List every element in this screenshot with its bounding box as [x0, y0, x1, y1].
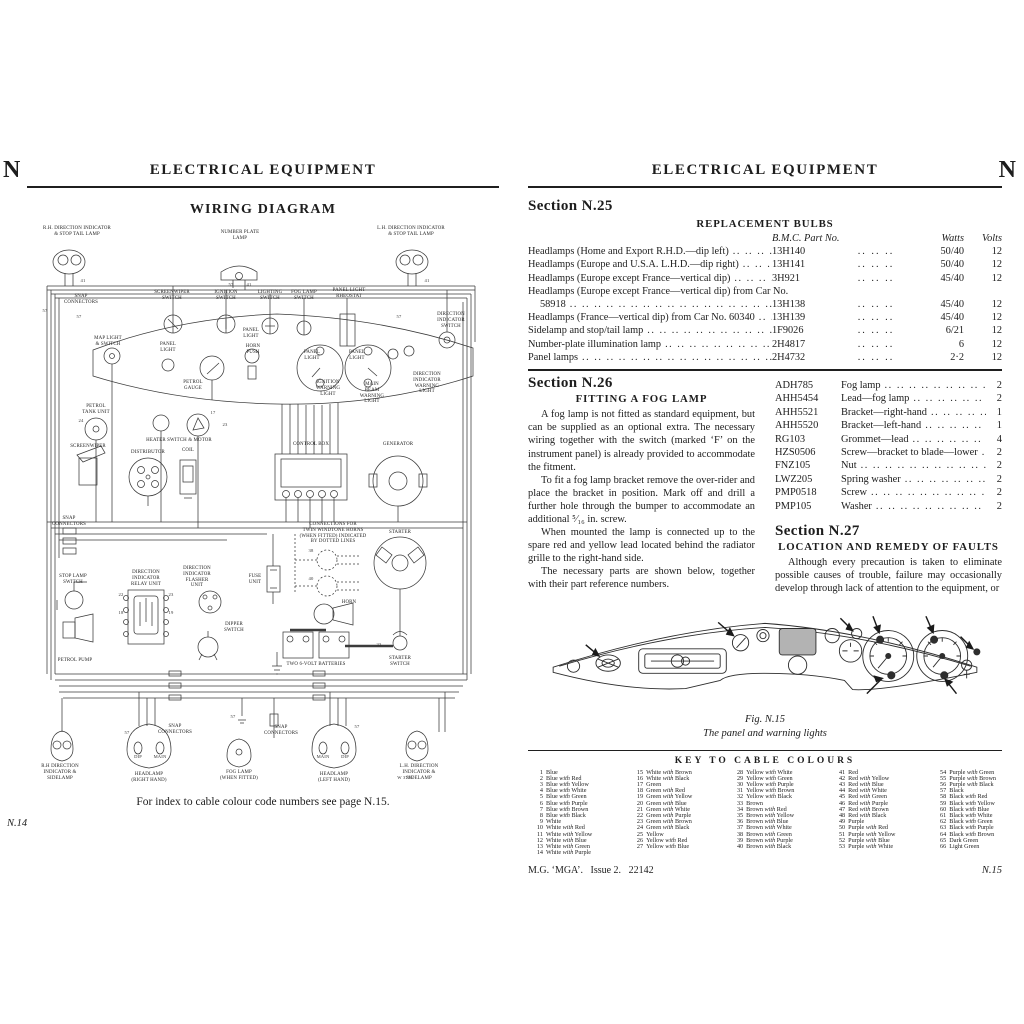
part-row: ADH785Fog lamp.. .. .. .. .. .. .. .. ..… [775, 379, 1002, 392]
component-label: HORN [342, 600, 356, 606]
paragraph: To fit a fog lamp bracket remove the ove… [528, 474, 755, 526]
page-n15: N ELECTRICAL EQUIPMENT Section N.25 REPL… [528, 160, 1002, 876]
component-label: SNAP CONNECTORS [158, 724, 192, 736]
column-header-part-no: B.M.C. Part No. [772, 232, 918, 245]
wiring-diagram-drawing [27, 222, 497, 788]
component-label: CONNECTIONS FOR TWIN WINDTONE HORNS (WHE… [290, 522, 376, 545]
column-header-watts: Watts [918, 232, 964, 245]
wire-code-label: 41 [81, 278, 86, 283]
component-label: PANEL LIGHT [349, 350, 365, 362]
component-label: MAP LIGHT & SWITCH [94, 336, 122, 348]
component-label: PANEL LIGHT RHEOSTAT [333, 288, 366, 300]
component-label: CONTROL BOX [293, 442, 329, 448]
key-item: 32Yellow with Black [734, 794, 794, 800]
page-n14: N ELECTRICAL EQUIPMENT WIRING DIAGRAM [27, 160, 499, 829]
wire-code-label: 33 [377, 642, 382, 647]
component-label: TWO 6-VOLT BATTERIES [266, 662, 366, 668]
figure-title: Fig. N.15 [528, 713, 1002, 727]
part-row: RG103Grommet—lead.. .. .. .. .. .. .. ..… [775, 433, 1002, 446]
wire-code-label: 23 [169, 592, 174, 597]
paragraph: The necessary parts are shown below, tog… [528, 565, 755, 591]
key-column: 41Red42Red with Yellow43Red with Blue44R… [836, 770, 895, 857]
bulb-row: Headlamps (Europe except France—vertical… [528, 285, 1002, 298]
page-number-n14: N.14 [7, 818, 499, 829]
bulb-row: Headlamps (Europe except France—vertical… [528, 272, 1002, 285]
key-item: 14White with Purple [534, 850, 592, 856]
section-n25-heading: Section N.25 [528, 198, 1002, 215]
paragraph: When mounted the lamp is connected up to… [528, 526, 755, 565]
section-letter-left: N [3, 158, 20, 182]
wire-code-label: 41 [247, 282, 252, 287]
left-page-head: N ELECTRICAL EQUIPMENT [27, 162, 499, 188]
wire-code-label: 22 [119, 592, 124, 597]
key-item: 27Yellow with Blue [634, 844, 692, 850]
component-label: L.H. DIRECTION INDICATOR & SIDELAMP [400, 764, 439, 781]
left-header-rule [27, 186, 499, 188]
component-label: STOP LAMP SWITCH [59, 574, 87, 586]
component-label: PETROL GAUGE [183, 380, 202, 392]
fitting-fog-lamp-title: FITTING A FOG LAMP [528, 393, 755, 406]
bulb-row: Headlamps (France—vertical dip) from Car… [528, 311, 1002, 324]
bulbs-rows: Headlamps (Home and Export R.H.D.—dip le… [528, 245, 1002, 364]
component-label: DISTRIBUTOR [131, 450, 165, 456]
bulb-row: Sidelamp and stop/tail lamp.. .. .. .. .… [528, 324, 1002, 337]
component-label: COIL [182, 448, 194, 454]
component-label: R.H. DIRECTION INDICATOR & STOP TAIL LAM… [42, 226, 112, 238]
part-row: FNZ105Nut.. .. .. .. .. .. .. .. .. .. .… [775, 459, 1002, 472]
cable-colour-key: 1Blue2Blue with Red3Blue with Yellow4Blu… [528, 770, 1002, 857]
column-header-volts: Volts [964, 232, 1002, 245]
part-row: LWZ205Spring washer.. .. .. .. .. .. .. … [775, 473, 1002, 486]
key-top-rule [528, 750, 1002, 751]
component-label: L.H. DIRECTION INDICATOR & STOP TAIL LAM… [376, 226, 446, 238]
part-row: PMP105Washer.. .. .. .. .. .. .. .. .. .… [775, 500, 1002, 513]
key-item: 66Light Green [937, 844, 996, 850]
section-n26-heading: Section N.26 [528, 377, 755, 390]
figure-caption: Fig. N.15 The panel and warning lights [528, 713, 1002, 741]
wire-code-label: 57 [397, 314, 402, 319]
part-row: AHH5454Lead—fog lamp.. .. .. .. .. .. ..… [775, 392, 1002, 405]
wire-code-label: 40 [309, 576, 314, 581]
right-page-footer: M.G. ‘MGA’. Issue 2. 22142 N.15 [528, 865, 1002, 876]
bulb-row: 58918.. .. .. .. .. .. .. .. .. .. .. ..… [528, 298, 1002, 311]
wire-code-label: DIP [134, 754, 142, 759]
paragraph: A fog lamp is not fitted as standard equ… [528, 408, 755, 473]
footer-imprint: M.G. ‘MGA’. Issue 2. 22142 [528, 865, 654, 876]
component-label: SNAP CONNECTORS [64, 294, 98, 306]
component-label: PETROL TANK UNIT [82, 404, 109, 416]
section-letter-right: N [999, 158, 1016, 182]
component-label: R.H DIRECTION INDICATOR & SIDELAMP [41, 764, 79, 781]
wire-code-label: 57 [43, 308, 48, 313]
part-row: HZS0506Screw—bracket to blade—lower.. ..… [775, 446, 1002, 459]
wire-code-label: 18 [119, 610, 124, 615]
n26-paragraphs: A fog lamp is not fitted as standard equ… [528, 408, 755, 591]
component-label: IGNITION WARNING LIGHT [316, 380, 340, 397]
scanned-manual-spread: N ELECTRICAL EQUIPMENT WIRING DIAGRAM [0, 0, 1024, 1024]
component-label: DIPPER SWITCH [224, 622, 244, 634]
component-label: SCREENWIPER [70, 444, 106, 450]
bulb-row: Headlamps (Europe and U.S.A. L.H.D.—dip … [528, 258, 1002, 271]
component-label: GENERATOR [383, 442, 413, 448]
component-label: FOG LAMP SWITCH [291, 290, 317, 302]
component-label: STARTER SWITCH [389, 656, 411, 668]
wire-code-label: 57 [125, 730, 130, 735]
bulb-row: Headlamps (Home and Export R.H.D.—dip le… [528, 245, 1002, 258]
component-label: FUSE UNIT [249, 574, 262, 586]
bulb-row: Number-plate illumination lamp.. .. .. .… [528, 338, 1002, 351]
part-row: PMP0518Screw.. .. .. .. .. .. .. .. .. .… [775, 486, 1002, 499]
wire-code-label: 57 [229, 282, 234, 287]
component-label: STARTER [389, 530, 411, 536]
component-label: PANEL LIGHT [243, 328, 259, 340]
footer-issue: Issue 2. [591, 865, 622, 876]
table-bottom-rule [528, 369, 1002, 371]
component-label: HEADLAMP (LEFT HAND) [318, 772, 350, 784]
right-page-header: ELECTRICAL EQUIPMENT [528, 162, 1002, 179]
component-label: PANEL LIGHT [160, 342, 176, 354]
component-label: FOG LAMP (WHEN FITTED) [220, 770, 258, 782]
component-label: MAIN BEAM WARNING LIGHT [360, 382, 384, 405]
wire-code-label: 41 [425, 278, 430, 283]
component-label: HEATER SWITCH & MOTOR [134, 438, 224, 444]
component-label: DIRECTION INDICATOR FLASHER UNIT [183, 566, 211, 589]
component-label: DIRECTION INDICATOR RELAY UNIT [131, 570, 161, 587]
wire-code-label: 17 [211, 410, 216, 415]
wire-code-label: 24 [79, 418, 84, 423]
component-label: DIRECTION INDICATOR SWITCH [437, 312, 465, 329]
n26-left-column: Section N.26 FITTING A FOG LAMP A fog la… [528, 377, 755, 596]
bulbs-table-header: B.M.C. Part No. Watts Volts [528, 232, 1002, 245]
figure-subtitle: The panel and warning lights [528, 727, 1002, 741]
component-label: LIGHTING SWITCH [258, 290, 283, 302]
wire-code-label: MAIN [154, 754, 167, 759]
component-label: HEADLAMP (RIGHT HAND) [131, 772, 166, 784]
right-header-rule [528, 186, 1002, 188]
footer-code: 22142 [629, 865, 654, 876]
part-row: AHH5521Bracket—right-hand.. .. .. .. .. … [775, 406, 1002, 419]
n26-right-column: ADH785Fog lamp.. .. .. .. .. .. .. .. ..… [775, 377, 1002, 596]
instrument-panel-drawing [545, 608, 985, 706]
location-remedy-title: LOCATION AND REMEDY OF FAULTS [775, 541, 1002, 554]
left-page-header: ELECTRICAL EQUIPMENT [27, 162, 499, 179]
key-to-cable-colours-title: KEY TO CABLE COLOURS [528, 756, 1002, 766]
key-column: 28Yellow with White29Yellow with Green30… [734, 770, 794, 857]
component-label: IGNITION SWITCH [214, 290, 237, 302]
sections-n26-n27: Section N.26 FITTING A FOG LAMP A fog la… [528, 377, 1002, 596]
replacement-bulbs-table: B.M.C. Part No. Watts Volts Headlamps (H… [528, 232, 1002, 364]
wire-code-label: 19 [169, 610, 174, 615]
key-column: 15White with Brown16White with Black17Gr… [634, 770, 692, 857]
right-page-head: N ELECTRICAL EQUIPMENT [528, 162, 1002, 188]
n27-paragraph: Although every precaution is taken to el… [775, 556, 1002, 595]
footer-book-title: M.G. ‘MGA’. [528, 865, 583, 876]
replacement-bulbs-title: REPLACEMENT BULBS [528, 218, 1002, 230]
figure-n15: Fig. N.15 The panel and warning lights [528, 608, 1002, 741]
part-row: AHH5520Bracket—left-hand.. .. .. .. .. .… [775, 419, 1002, 432]
wire-code-label: 57 [355, 724, 360, 729]
component-label: SNAP CONNECTORS [52, 516, 86, 528]
key-column: 54Purple with Green55Purple with Brown56… [937, 770, 996, 857]
wire-code-label: DIP [341, 754, 349, 759]
bulb-row: Panel lamps.. .. .. .. .. .. .. .. .. ..… [528, 351, 1002, 364]
section-n27-heading: Section N.27 [775, 525, 1002, 538]
key-item: 53Purple with White [836, 844, 895, 850]
key-item: 40Brown with Black [734, 844, 794, 850]
fog-lamp-parts-list: ADH785Fog lamp.. .. .. .. .. .. .. .. ..… [775, 379, 1002, 513]
component-label: SNAP CONNECTORS [264, 725, 298, 737]
page-number-n15: N.15 [982, 865, 1002, 876]
component-label: PETROL PUMP [58, 658, 93, 664]
wire-code-label: 23 [223, 422, 228, 427]
component-label: SCREENWIPER SWITCH [154, 290, 190, 302]
wire-code-label: 57 [231, 714, 236, 719]
component-label: HORN PUSH [246, 344, 260, 356]
wire-code-label: 57 [77, 314, 82, 319]
wiring-diagram: R.H. DIRECTION INDICATOR & STOP TAIL LAM… [27, 222, 497, 788]
cable-colour-index-note: For index to cable colour code numbers s… [27, 796, 499, 808]
wiring-diagram-title: WIRING DIAGRAM [27, 202, 499, 218]
key-column: 1Blue2Blue with Red3Blue with Yellow4Blu… [534, 770, 592, 857]
wire-code-label: 38 [309, 548, 314, 553]
component-label: NUMBER PLATE LAMP [221, 230, 260, 242]
component-label: PANEL LIGHT [304, 350, 320, 362]
wire-code-label: MAIN [317, 754, 330, 759]
component-label: DIRECTION INDICATOR WARNING LIGHT [413, 372, 441, 395]
